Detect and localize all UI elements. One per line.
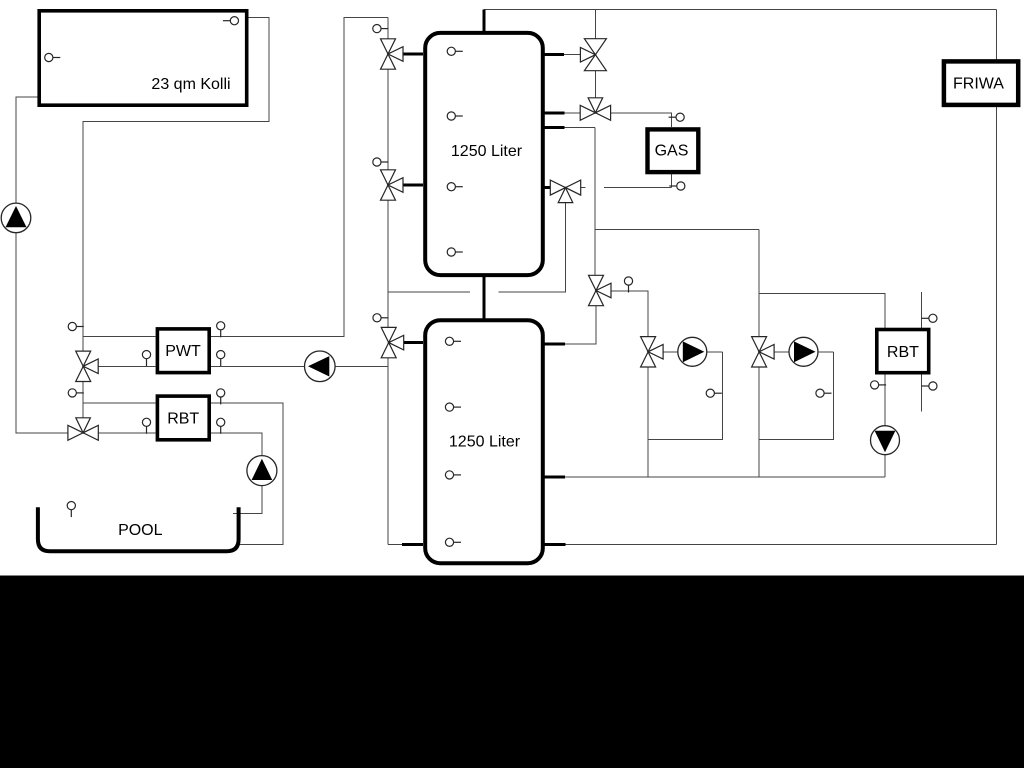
svg-text:PWT: PWT: [165, 343, 201, 360]
svg-text:23 qm Kolli: 23 qm Kolli: [151, 76, 230, 93]
svg-text:POOL: POOL: [118, 522, 163, 539]
svg-text:1250 Liter: 1250 Liter: [451, 143, 523, 160]
svg-text:1250 Liter: 1250 Liter: [449, 433, 521, 450]
svg-text:GAS: GAS: [655, 143, 689, 160]
svg-text:RBT: RBT: [167, 411, 199, 428]
svg-text:RBT: RBT: [887, 344, 919, 361]
svg-text:FRIWA: FRIWA: [953, 76, 1004, 93]
